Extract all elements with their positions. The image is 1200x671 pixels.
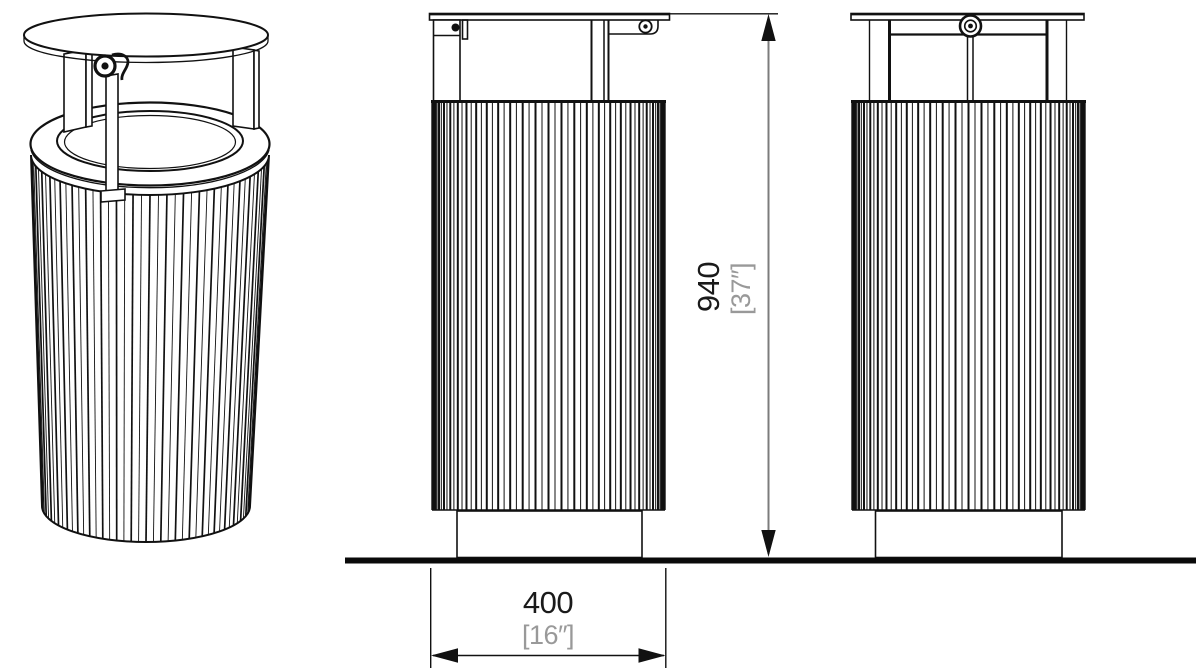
side-ribs [853, 103, 1085, 510]
front-lock-bracket [609, 20, 659, 34]
isometric-view [24, 14, 270, 543]
side-base [876, 511, 1063, 558]
arrow-right-icon [639, 648, 666, 662]
arrow-down-icon [761, 530, 775, 557]
front-base [457, 511, 642, 558]
side-center-post [968, 30, 974, 101]
front-view [429, 14, 670, 558]
technical-drawing-sheet: 940 [37″] 400 [16″] [0, 0, 1200, 671]
iso-lid [24, 14, 268, 63]
width-value-inches: [16″] [498, 621, 598, 649]
side-view [851, 14, 1087, 558]
front-pin-icon [452, 24, 460, 32]
litter-bin-drawing [0, 0, 1200, 671]
side-bolt-icon [960, 16, 981, 37]
front-ribs [433, 103, 665, 510]
front-center-posts [592, 20, 609, 101]
arrow-up-icon [761, 14, 775, 41]
height-value-inches: [37″] [727, 254, 755, 324]
arrow-left-icon [431, 648, 458, 662]
width-value-mm: 400 [498, 587, 598, 619]
front-left-post [434, 20, 468, 101]
height-value-mm: 940 [693, 257, 725, 317]
